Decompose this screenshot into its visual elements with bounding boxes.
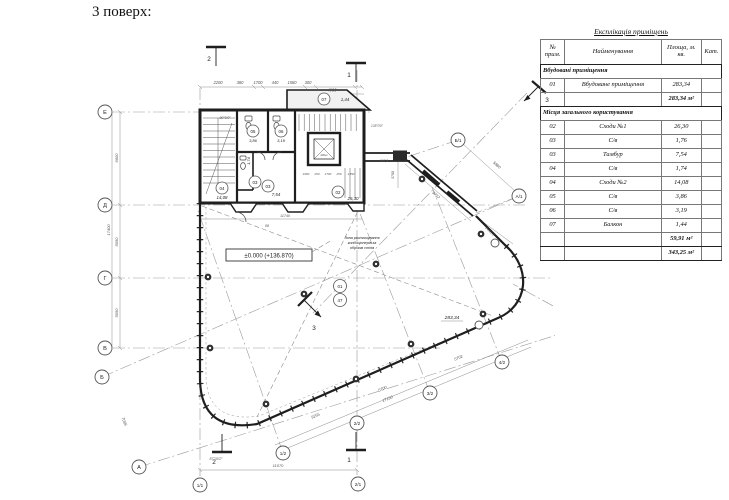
dim-lift: 400кг — [320, 153, 328, 157]
room-tag-07: 07 — [322, 97, 327, 102]
dim-right-3: 2440,3 — [484, 225, 495, 236]
dim-top-5: 300 — [305, 80, 313, 85]
table-title: Експлікація приміщень — [540, 27, 722, 36]
room-area-02: 26,30 — [347, 196, 360, 201]
cell-area: 3,86 — [661, 191, 701, 205]
table-row: 03 Тамбур 7,54 — [541, 149, 722, 163]
dim-stair-4: 1350 — [348, 172, 355, 176]
cell-num: 03 — [541, 135, 565, 149]
cell-num: 01 — [541, 79, 565, 93]
dim-left-3: 5050 — [114, 308, 119, 318]
cell-area: 14,08 — [661, 177, 701, 191]
cell-cat — [701, 79, 721, 93]
dim-stair-0: 1060 — [303, 172, 310, 176]
building-core — [200, 90, 370, 222]
total-row: 343,25 м² — [541, 247, 722, 261]
axis-1-2: 1/2 — [280, 451, 287, 456]
header-num: № прим. — [541, 40, 565, 65]
cell-num: 06 — [541, 205, 565, 219]
subtotal-row-builtin: 283,34 м² — [541, 93, 722, 107]
room-tag-04: 04 — [220, 186, 225, 191]
room-tag-05: 05 — [251, 129, 256, 134]
dim-right-1: 5880 — [492, 160, 503, 170]
table-row: 02 Сходи №1 26,30 — [541, 121, 722, 135]
table-row: 03 С/в 1,76 — [541, 135, 722, 149]
table-row: 05 С/в 3,86 — [541, 191, 722, 205]
cell-cat — [701, 219, 721, 233]
room-area-03b: 7,54 — [272, 192, 281, 197]
room-area-06: 3,19 — [277, 138, 286, 143]
cell-cat — [701, 177, 721, 191]
dim-top-6: 4900 — [327, 88, 337, 93]
cell-cat — [701, 163, 721, 177]
dim-top-4: 1580 — [287, 80, 297, 85]
room-area-03a: 1,74 — [246, 156, 251, 165]
room-area-05: 3,86 — [249, 138, 258, 143]
dim-right-2: 9737 — [431, 190, 442, 200]
cell-name: Балкон — [565, 219, 662, 233]
axis-4-2: 4/2 — [499, 360, 506, 365]
dim-left-2: 5050 — [114, 237, 119, 247]
cell-area: 26,30 — [661, 121, 701, 135]
dim-bottom-d3: 5700 — [377, 384, 388, 392]
header-name: Найменування — [565, 40, 662, 65]
cell-name: С/в — [565, 163, 662, 177]
cell-area: 7,54 — [661, 149, 701, 163]
dim-left-1: 6600 — [114, 153, 119, 163]
cell-area: 3,19 — [661, 205, 701, 219]
dim-top-3: 440 — [272, 80, 280, 85]
section-1-top: 1 — [347, 72, 351, 79]
room-area-04: 14,08 — [217, 195, 229, 200]
dim-stair-1: 250 — [313, 172, 319, 176]
table-row: 01 Вбудоване приміщення 283,34 — [541, 79, 722, 93]
subtotal-builtin: 283,34 м² — [661, 93, 701, 107]
cell-area: 283,34 — [661, 79, 701, 93]
cell-name: С/в — [565, 135, 662, 149]
cell-name: С/в — [565, 205, 662, 219]
cell-name: Сходи №1 — [565, 121, 662, 135]
cell-name: Вбудоване приміщення — [565, 79, 662, 93]
dim-right-4: 3700 — [391, 171, 395, 179]
angle-90: 90°0'0" — [219, 116, 231, 120]
room-tag-02: 02 — [336, 190, 341, 195]
section-2-top: 2 — [207, 56, 211, 63]
cell-num: 04 — [541, 177, 565, 191]
header-cat: Кат. — [701, 40, 721, 65]
axis-3-2: 3/2 — [427, 391, 434, 396]
section-row-common: Місця загального користування — [541, 107, 722, 121]
dim-door: 08 — [265, 224, 269, 228]
dim-top-0: 2200 — [212, 80, 223, 85]
cell-num: 07 — [541, 219, 565, 233]
axis-a: А — [137, 465, 141, 471]
section-3-mid: 3 — [312, 325, 316, 332]
axis-e: Е — [103, 110, 107, 116]
cell-cat — [701, 191, 721, 205]
room-tag-03a: 03 — [253, 180, 258, 185]
room-tag-01-sub: 47 — [338, 298, 343, 303]
axis-2-2: 2/2 — [354, 421, 361, 426]
level-mark: ±0.000 (+136.870) — [226, 240, 332, 261]
cell-num: 04 — [541, 163, 565, 177]
cell-area: 1,74 — [661, 163, 701, 177]
cell-area: 1,44 — [661, 219, 701, 233]
axis-g: Г — [103, 276, 106, 282]
cell-cat — [701, 205, 721, 219]
dim-top-1: 380 — [237, 80, 245, 85]
angle-135: 135°0'0" — [371, 124, 384, 128]
axis-v: В — [103, 346, 107, 352]
axis-b-1: Б/1 — [455, 138, 462, 143]
level-mark-text: ±0.000 (+136.870) — [244, 254, 293, 260]
table-row: 04 Сходи №2 14,08 — [541, 177, 722, 191]
explication-panel: Експлікація приміщень № прим. Найменуван… — [540, 27, 722, 261]
cell-cat — [701, 135, 721, 149]
cell-cat — [701, 121, 721, 135]
section-label: Місця загального користування — [541, 107, 722, 121]
table-row: 06 С/в 3,19 — [541, 205, 722, 219]
axis-b: Б — [100, 375, 104, 381]
page-title: 3 поверх: — [92, 4, 152, 21]
subtotal-row-common: 59,91 м² — [541, 233, 722, 247]
table-row: 07 Балкон 1,44 — [541, 219, 722, 233]
table-row: 04 С/в 1,74 — [541, 163, 722, 177]
floor-plan: Е Д Г В Б А 1/1 2/1 1/2 2/2 3/2 4/2 Б/1 … — [85, 30, 555, 500]
dim-stair-2: 1700 — [325, 172, 332, 176]
angle-87: 87°30'2" — [209, 457, 223, 461]
cell-cat — [701, 149, 721, 163]
ac-zone-note: Зона розташування кондиціонерів за обріз… — [344, 236, 379, 250]
header-area: Площа, м. кв. — [661, 40, 701, 65]
elevator-shaft — [308, 133, 340, 165]
room-tag-03b: 03 — [266, 184, 271, 189]
room-area-01: 283,34 — [444, 315, 460, 321]
axis-a-1: А/1 — [516, 194, 523, 199]
dim-right-5: 867,8 — [380, 159, 388, 163]
dim-stair-3: 250 — [335, 172, 341, 176]
room-tag-01: 01 — [338, 284, 343, 289]
dim-bottom-d4: 5702 — [453, 353, 464, 361]
note-line-3: обрізом стіни — [350, 246, 374, 250]
section-1-bottom: 1 — [347, 457, 351, 464]
cell-name: С/в — [565, 191, 662, 205]
room-area-07: 1,44 — [341, 97, 350, 102]
cell-num: 03 — [541, 149, 565, 163]
axis-d: Д — [103, 203, 107, 209]
cell-num: 02 — [541, 121, 565, 135]
dim-bottom-h: 11070 — [273, 463, 285, 468]
subtotal-common: 59,91 м² — [661, 233, 701, 247]
room-tag-06: 06 — [279, 129, 284, 134]
dim-ba: 7085 — [120, 416, 128, 427]
cell-area: 1,76 — [661, 135, 701, 149]
section-row-builtin: Вбудовані приміщення — [541, 65, 722, 79]
axis-1-1: 1/1 — [197, 483, 204, 488]
explication-table: № прим. Найменування Площа, м. кв. Кат. … — [540, 39, 722, 261]
note-line-1: Зона розташування — [344, 236, 379, 240]
cell-name: Сходи №2 — [565, 177, 662, 191]
dim-top-2: 1700 — [253, 80, 263, 85]
dim-left-total: 17400 — [106, 224, 111, 236]
dim-core-w: 11740 — [280, 214, 290, 218]
table-header-row: № прим. Найменування Площа, м. кв. Кат. — [541, 40, 722, 65]
dim-bottom-d2: 17190 — [381, 394, 394, 403]
section-label: Вбудовані приміщення — [541, 65, 722, 79]
cell-name: Тамбур — [565, 149, 662, 163]
page: 3 поверх: — [0, 0, 729, 500]
grand-total: 343,25 м² — [661, 247, 701, 261]
cell-num: 05 — [541, 191, 565, 205]
axis-2-1: 2/1 — [355, 482, 362, 487]
note-line-2: кондиціонерів за — [348, 241, 377, 245]
